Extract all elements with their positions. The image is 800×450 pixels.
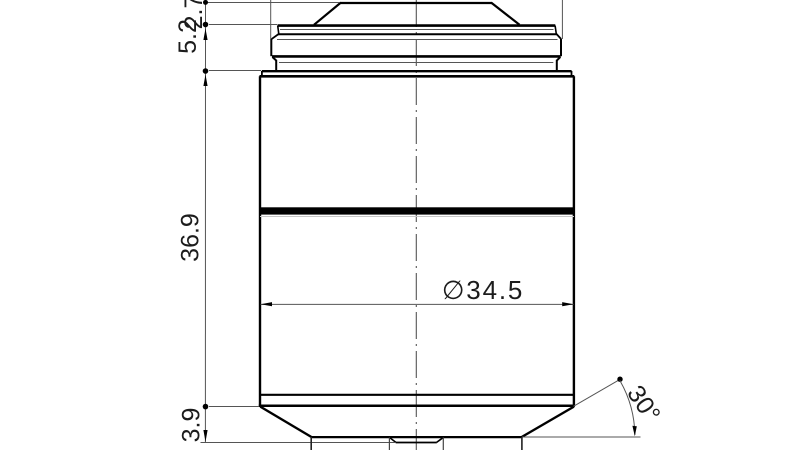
svg-text:36.9: 36.9 (177, 213, 205, 262)
svg-text:∅34.5: ∅34.5 (442, 275, 524, 305)
svg-text:3.9: 3.9 (178, 408, 206, 443)
svg-text:30°: 30° (621, 380, 665, 427)
svg-text:5.2: 5.2 (174, 19, 202, 54)
